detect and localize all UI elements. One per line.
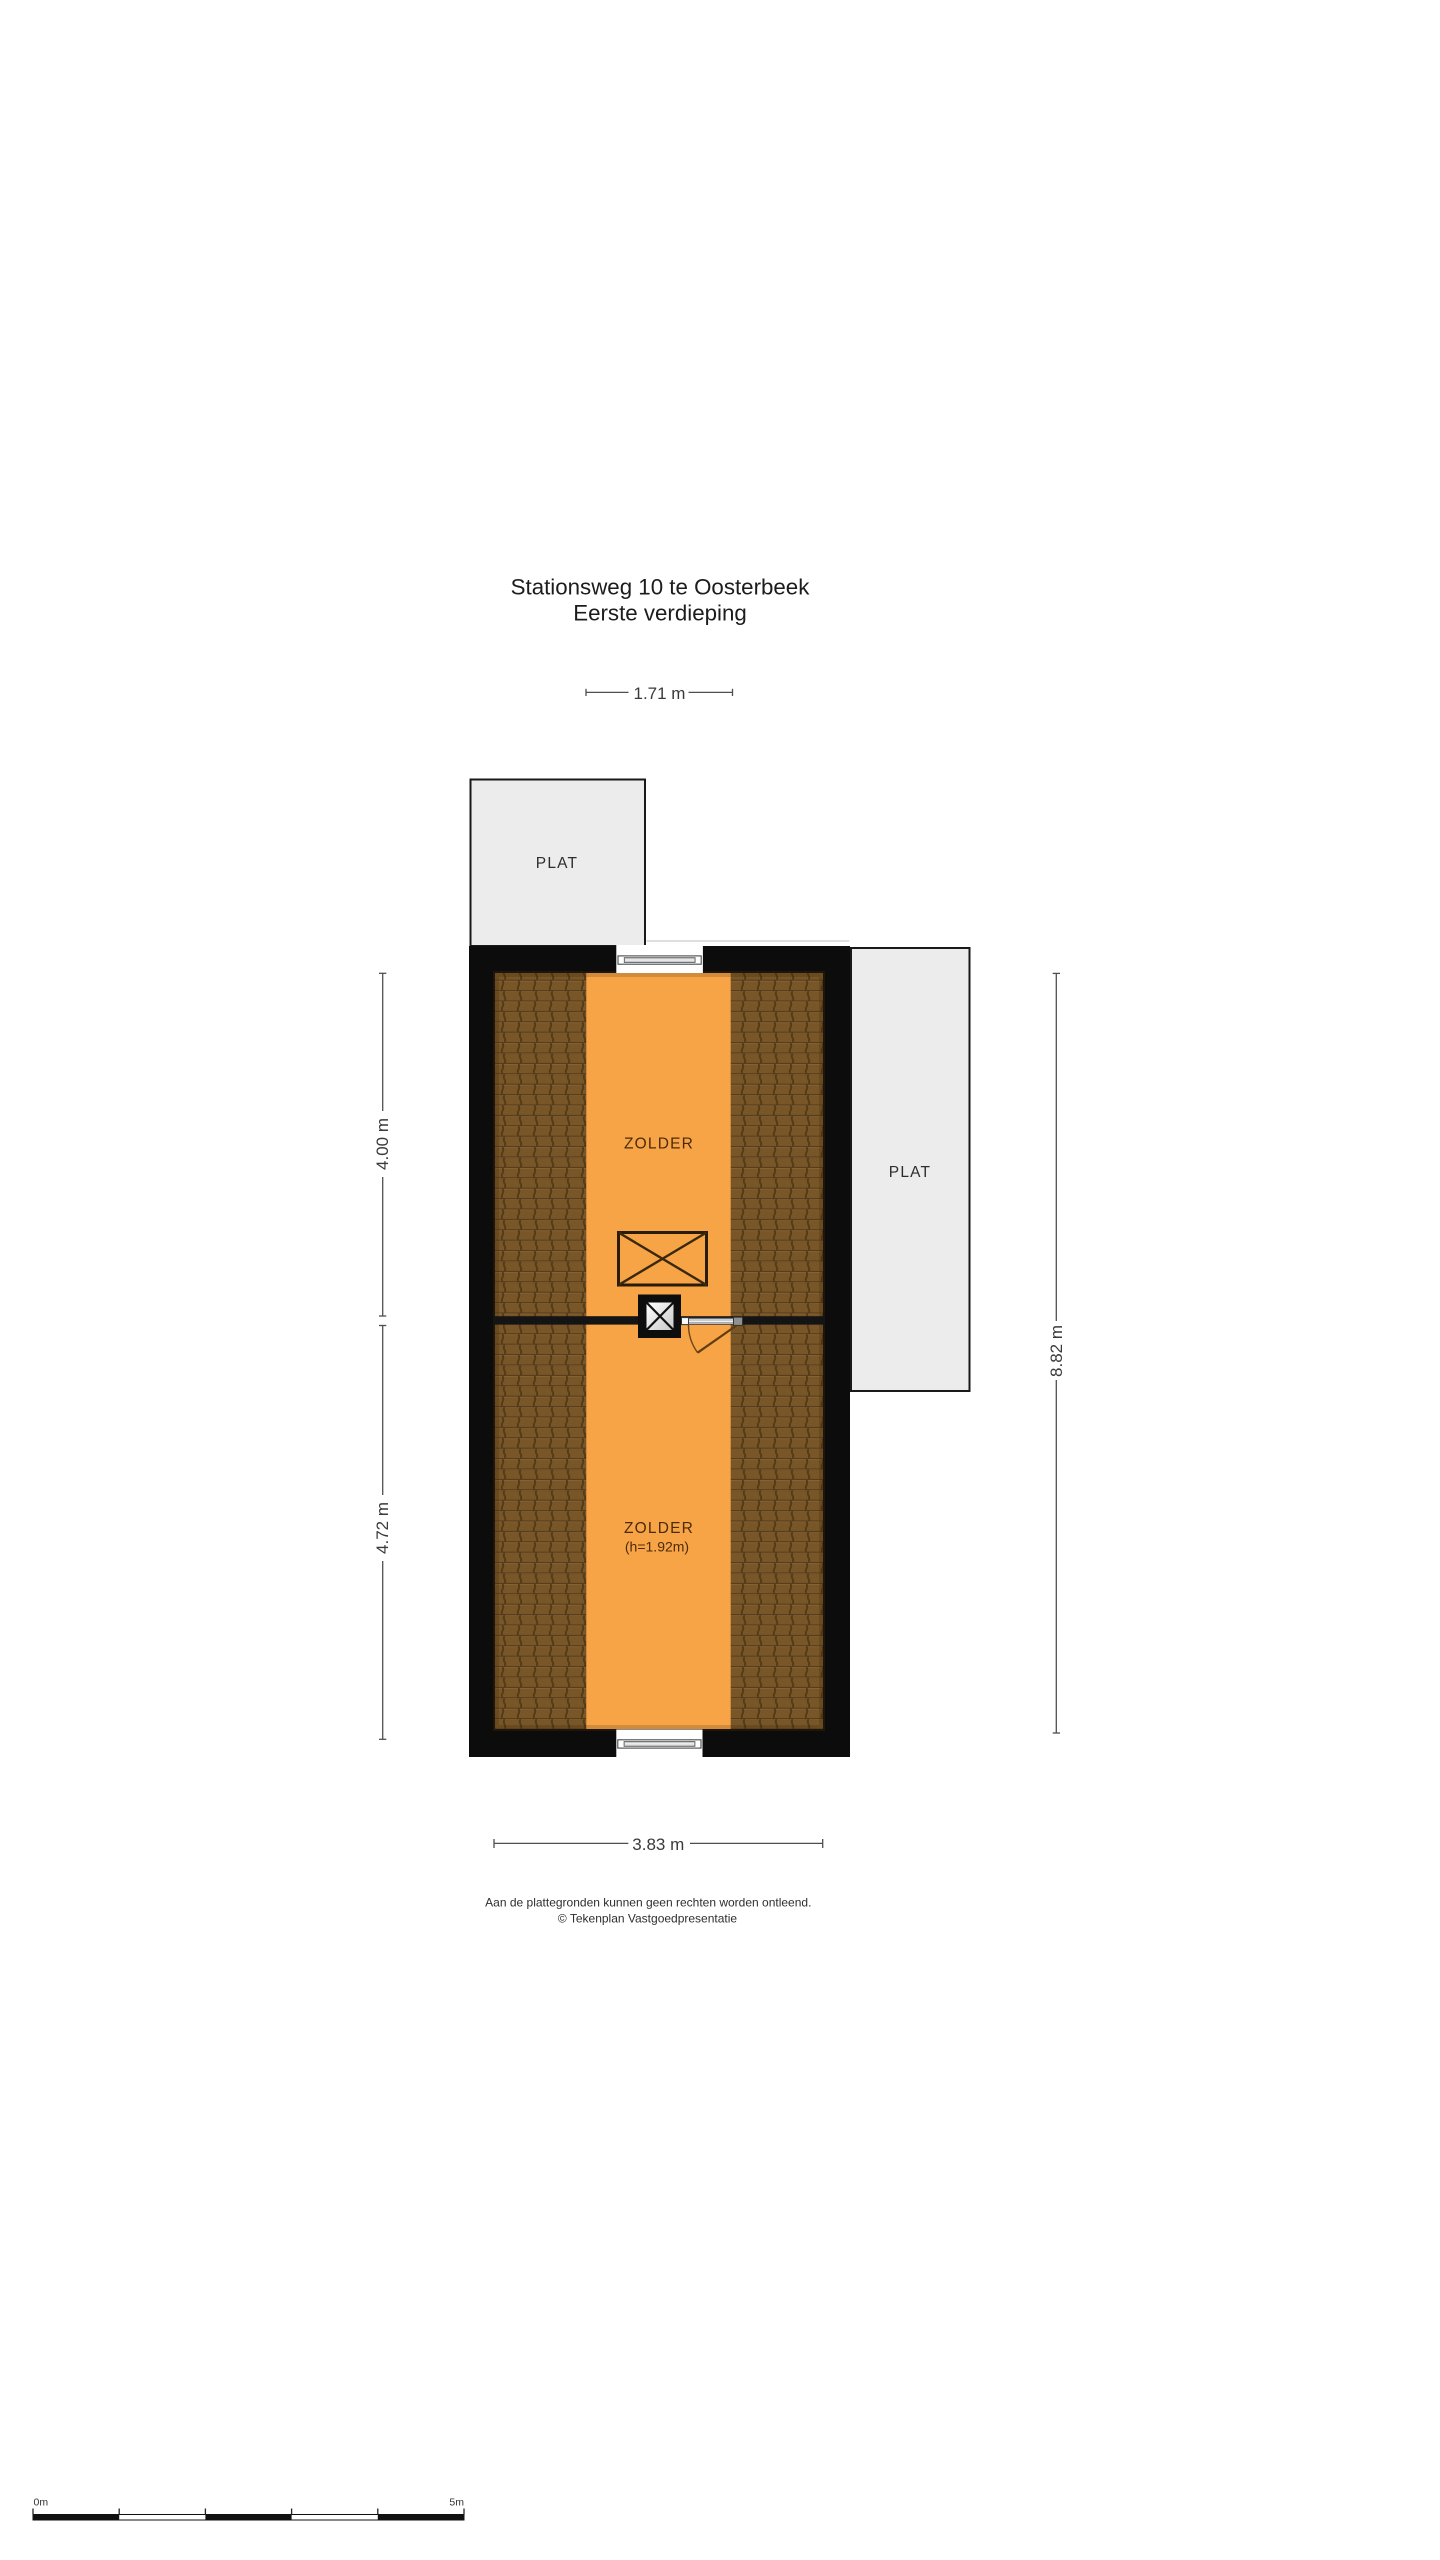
svg-text:PLAT: PLAT	[536, 855, 578, 872]
svg-text:(h=1.92m): (h=1.92m)	[625, 1539, 689, 1555]
svg-text:ZOLDER: ZOLDER	[624, 1520, 694, 1537]
svg-text:4.72 m: 4.72 m	[373, 1502, 392, 1554]
svg-text:Eerste verdieping: Eerste verdieping	[573, 601, 747, 626]
svg-text:© Tekenplan Vastgoedpresentati: © Tekenplan Vastgoedpresentatie	[558, 1912, 738, 1926]
svg-text:ZOLDER: ZOLDER	[624, 1136, 694, 1153]
svg-text:4.00 m: 4.00 m	[373, 1118, 392, 1170]
svg-text:3.83 m: 3.83 m	[632, 1835, 684, 1854]
svg-text:0m: 0m	[34, 2497, 49, 2509]
svg-text:5m: 5m	[449, 2497, 464, 2509]
svg-text:Aan de plattegronden kunnen ge: Aan de plattegronden kunnen geen rechten…	[485, 1896, 811, 1910]
svg-text:8.82 m: 8.82 m	[1047, 1325, 1066, 1377]
svg-text:PLAT: PLAT	[889, 1164, 931, 1181]
svg-text:1.71 m: 1.71 m	[634, 684, 686, 703]
svg-text:Stationsweg 10 te Oosterbeek: Stationsweg 10 te Oosterbeek	[511, 575, 811, 600]
